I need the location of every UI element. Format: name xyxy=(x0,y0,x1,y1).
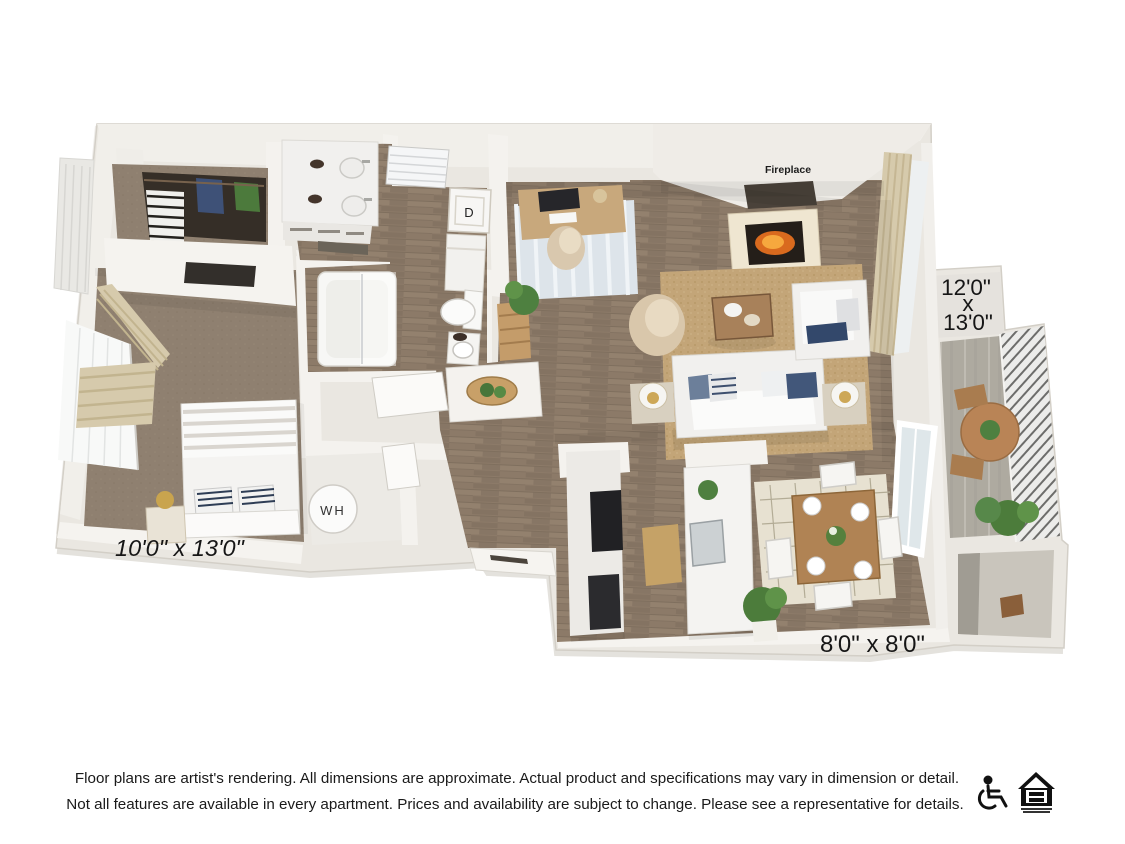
svg-text:13'0": 13'0" xyxy=(943,310,993,335)
svg-text:Fireplace: Fireplace xyxy=(765,164,811,176)
svg-text:Not all features are available: Not all features are available in every … xyxy=(66,796,963,813)
svg-text:8'0" x 8'0": 8'0" x 8'0" xyxy=(820,631,925,658)
svg-text:Floor plans are artist's rende: Floor plans are artist's rendering. All … xyxy=(75,770,959,787)
svg-text:10'0" x 13'0": 10'0" x 13'0" xyxy=(115,535,246,561)
svg-text:D: D xyxy=(464,205,473,220)
svg-text:WH: WH xyxy=(320,503,346,518)
